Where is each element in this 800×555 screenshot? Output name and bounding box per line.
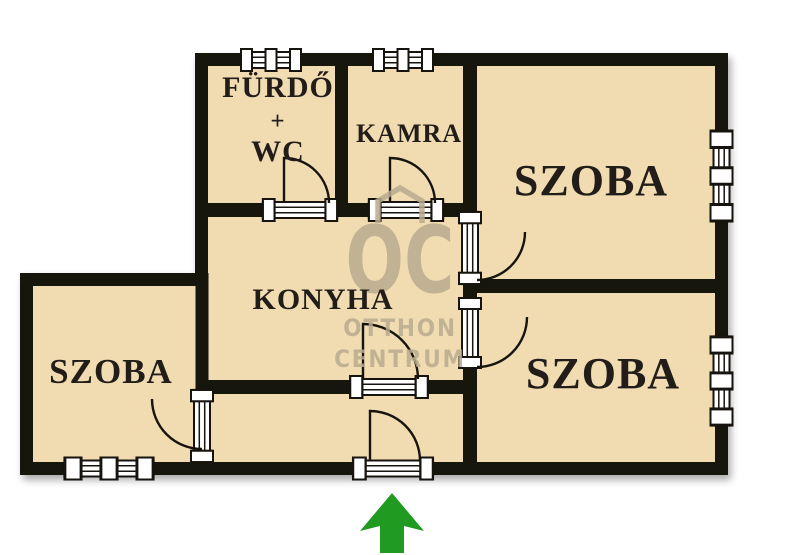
door-kitchen bbox=[350, 376, 428, 398]
entrance-arrow-icon bbox=[360, 493, 424, 553]
label-pantry: KAMRA bbox=[356, 119, 462, 148]
label-bathroom-line1: FÜRDŐ bbox=[222, 71, 334, 104]
watermark: OC OTTHON CENTRUM bbox=[334, 188, 466, 373]
label-room-bottom-left: SZOBA bbox=[49, 352, 173, 391]
watermark-line2: CENTRUM bbox=[334, 346, 466, 373]
window-bathroom bbox=[241, 49, 301, 71]
window-pantry bbox=[373, 49, 433, 71]
window-room-bottom-left bbox=[65, 458, 153, 480]
window-room-top-right bbox=[711, 131, 733, 221]
label-kitchen: KONYHA bbox=[253, 283, 394, 316]
door-room-bottom-left bbox=[191, 390, 213, 462]
door-bathroom bbox=[263, 199, 337, 221]
floorplan-svg: OC OTTHON CENTRUM FÜRDŐ + WC KAMRA SZOBA… bbox=[0, 0, 800, 555]
door-room-top-right bbox=[459, 212, 481, 284]
label-room-bottom-right: SZOBA bbox=[526, 349, 680, 398]
window-room-bottom-right bbox=[711, 337, 733, 425]
label-bathroom-line2: + bbox=[270, 108, 285, 135]
entrance-hall bbox=[208, 394, 463, 462]
floorplan-canvas: OC OTTHON CENTRUM FÜRDŐ + WC KAMRA SZOBA… bbox=[0, 0, 800, 555]
label-bathroom-line3: WC bbox=[251, 135, 305, 168]
watermark-line1: OTTHON bbox=[343, 315, 457, 342]
label-room-top-right: SZOBA bbox=[514, 156, 668, 205]
